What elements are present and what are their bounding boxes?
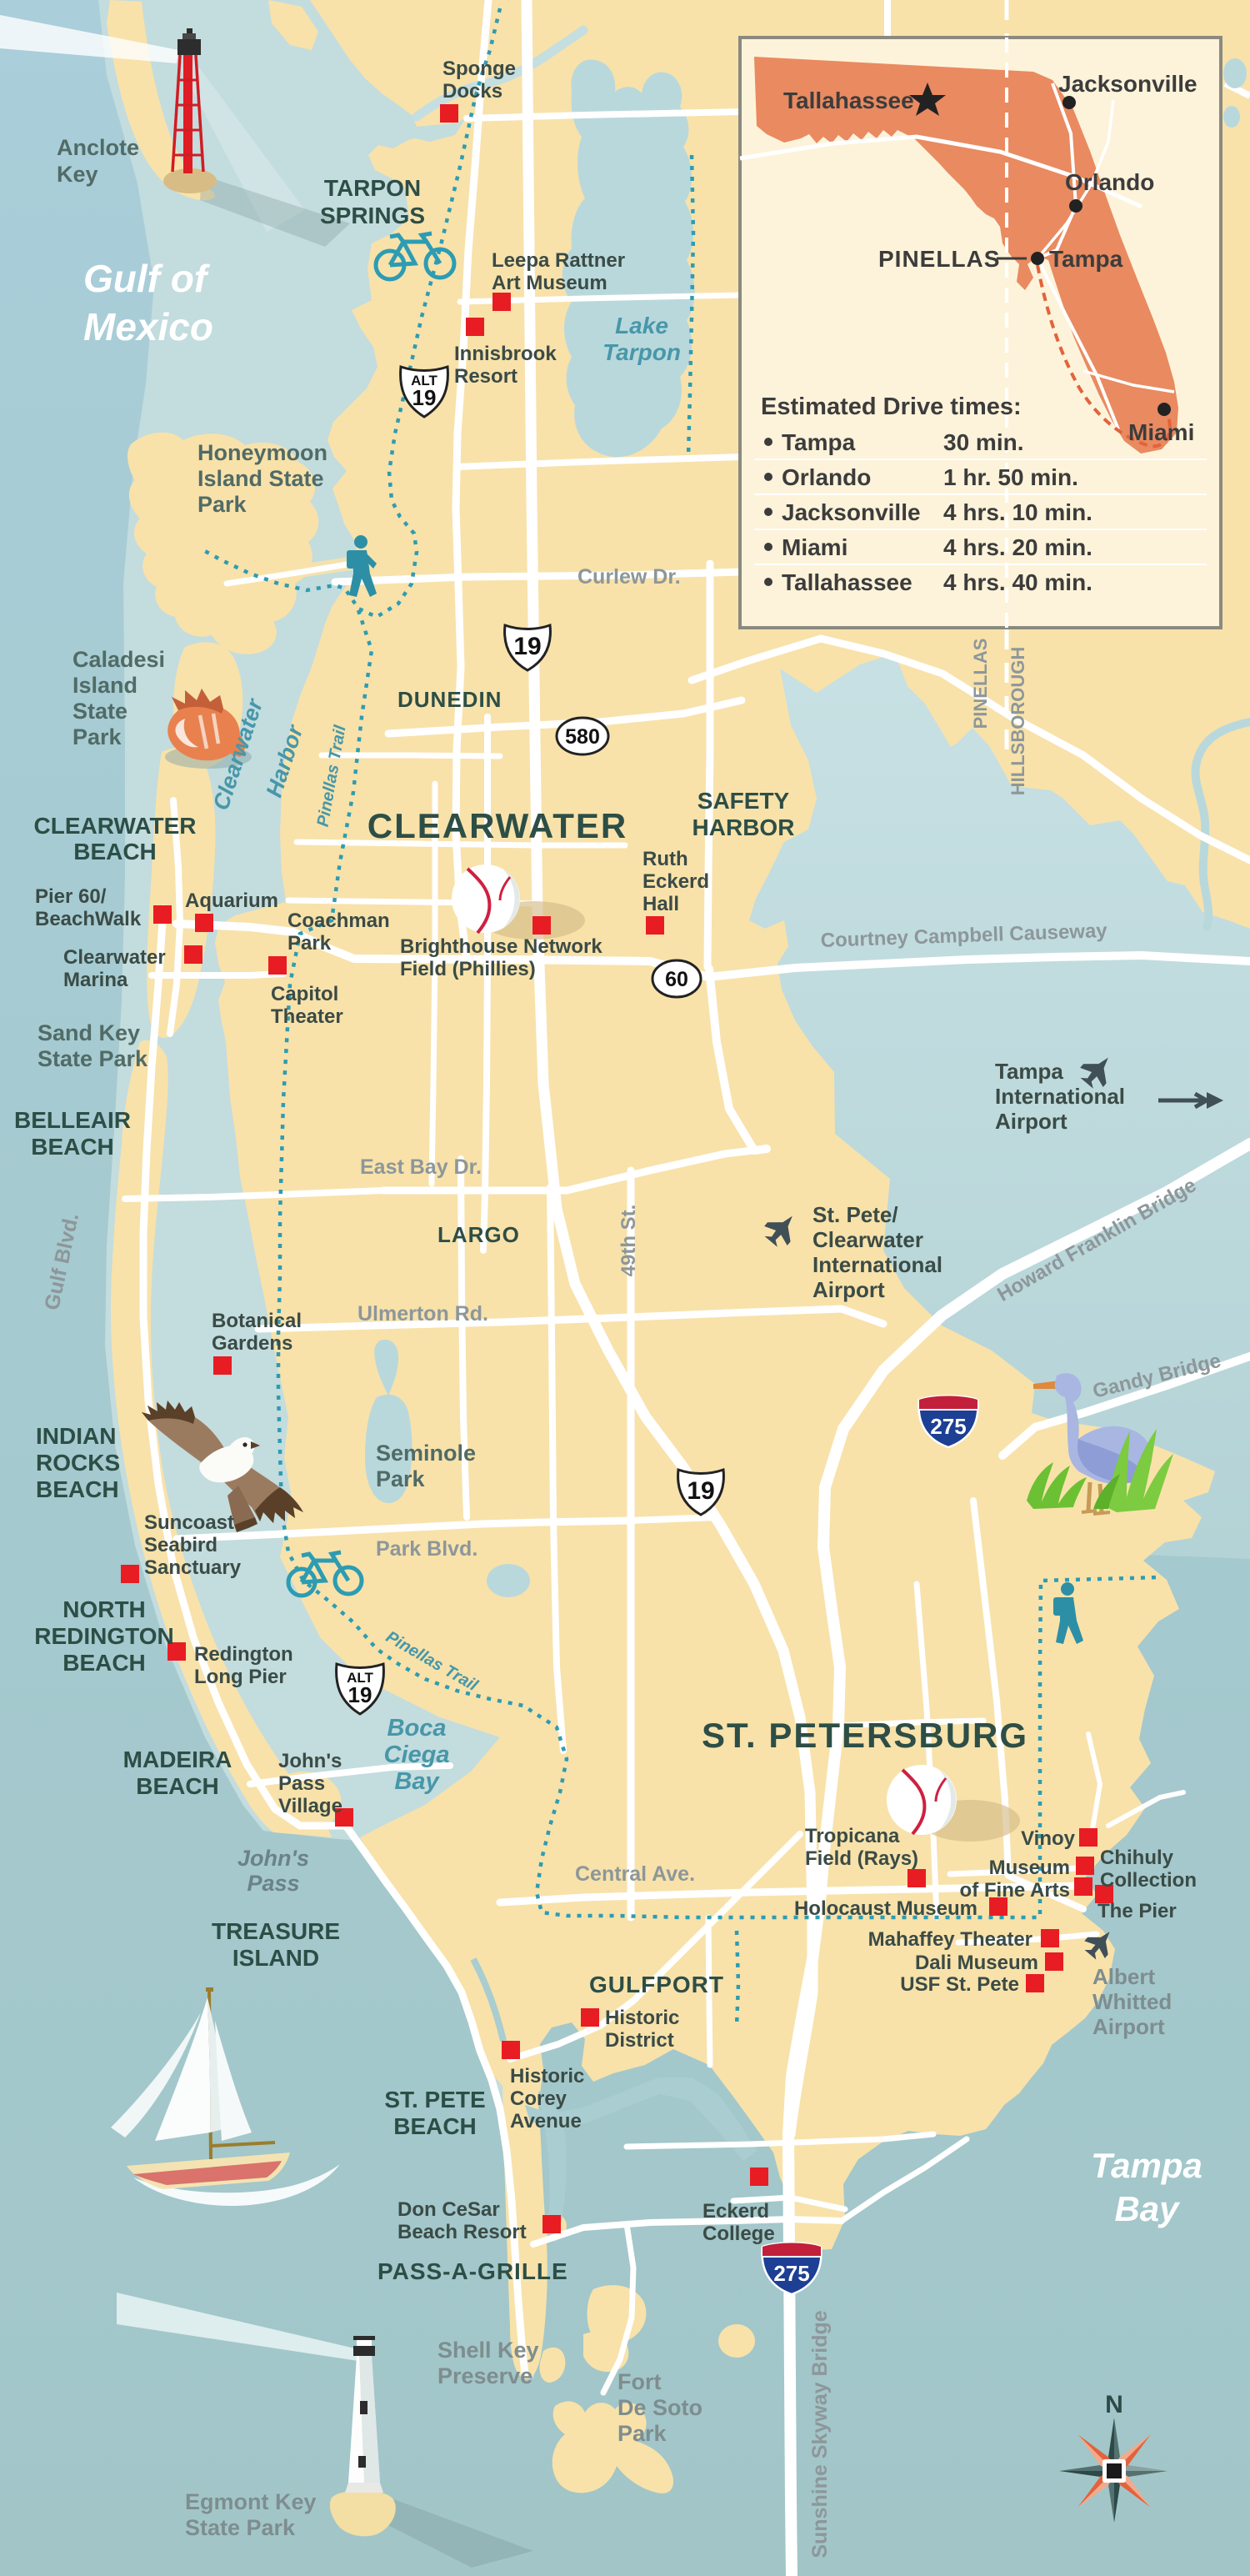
svg-text:College: College — [702, 2223, 775, 2245]
svg-text:BeachWalk: BeachWalk — [35, 908, 142, 930]
svg-text:Avenue: Avenue — [510, 2110, 582, 2132]
svg-text:De Soto: De Soto — [617, 2395, 702, 2420]
svg-text:Key: Key — [57, 162, 98, 187]
svg-text:580: 580 — [565, 725, 600, 749]
svg-text:Tampa: Tampa — [995, 1059, 1063, 1084]
svg-text:Ulmerton Rd.: Ulmerton Rd. — [357, 1302, 488, 1326]
svg-text:ST. PETE: ST. PETE — [384, 2087, 485, 2112]
svg-text:Boca: Boca — [387, 1715, 447, 1742]
svg-text:Eckerd: Eckerd — [642, 870, 709, 893]
svg-text:Lake: Lake — [615, 313, 668, 338]
svg-text:Albert: Albert — [1092, 1964, 1155, 1989]
svg-text:BEACH: BEACH — [36, 1476, 119, 1502]
svg-text:Mexico: Mexico — [83, 305, 213, 348]
svg-text:Vinoy: Vinoy — [1021, 1827, 1076, 1850]
svg-text:1 hr. 50 min.: 1 hr. 50 min. — [943, 464, 1078, 490]
svg-text:Marina: Marina — [63, 969, 128, 991]
svg-text:John's: John's — [278, 1750, 342, 1772]
svg-text:NORTH: NORTH — [62, 1596, 146, 1622]
svg-text:Redington: Redington — [194, 1643, 293, 1666]
svg-text:Tallahassee: Tallahassee — [782, 569, 912, 595]
svg-text:Clearwater: Clearwater — [63, 946, 166, 969]
svg-text:Pass: Pass — [278, 1772, 325, 1795]
svg-text:275: 275 — [773, 2261, 809, 2286]
svg-text:SAFETY: SAFETY — [697, 788, 790, 814]
svg-text:District: District — [605, 2029, 674, 2052]
svg-text:Corey: Corey — [510, 2087, 567, 2110]
svg-text:PINELLAS: PINELLAS — [970, 639, 991, 729]
svg-text:Art Museum: Art Museum — [492, 272, 607, 294]
svg-text:Bay: Bay — [1114, 2189, 1181, 2228]
svg-text:Park: Park — [197, 492, 247, 517]
svg-text:60: 60 — [665, 968, 688, 991]
svg-text:Sand Key: Sand Key — [37, 1020, 140, 1045]
svg-text:St. Pete/: St. Pete/ — [812, 1202, 898, 1227]
svg-text:DUNEDIN: DUNEDIN — [397, 687, 502, 712]
svg-text:Park: Park — [287, 932, 332, 955]
svg-text:Whitted: Whitted — [1092, 1989, 1172, 2014]
svg-text:TARPON: TARPON — [324, 175, 421, 201]
svg-text:Historic: Historic — [605, 2007, 679, 2029]
svg-text:Theater: Theater — [271, 1005, 343, 1028]
svg-text:BEACH: BEACH — [62, 1650, 146, 1676]
svg-text:Estimated Drive times:: Estimated Drive times: — [761, 393, 1022, 420]
svg-text:Park: Park — [617, 2421, 667, 2446]
svg-text:Tarpon: Tarpon — [602, 339, 681, 365]
svg-text:Curlew Dr.: Curlew Dr. — [577, 565, 681, 589]
svg-text:Mahaffey Theater: Mahaffey Theater — [868, 1928, 1032, 1951]
svg-text:Caladesi: Caladesi — [72, 647, 165, 672]
svg-text:Island: Island — [72, 673, 137, 698]
svg-text:State: State — [72, 699, 127, 724]
svg-text:Tampa: Tampa — [1091, 2146, 1202, 2185]
svg-text:BEACH: BEACH — [393, 2113, 477, 2139]
svg-text:Brighthouse Network: Brighthouse Network — [400, 935, 602, 958]
svg-text:Shell Key: Shell Key — [437, 2338, 539, 2363]
svg-text:Museum: Museum — [989, 1857, 1070, 1879]
svg-text:30 min.: 30 min. — [943, 429, 1023, 455]
svg-text:TREASURE: TREASURE — [212, 1918, 340, 1944]
svg-text:Capitol: Capitol — [271, 983, 338, 1005]
svg-text:MADEIRA: MADEIRA — [123, 1747, 232, 1772]
svg-text:Eckerd: Eckerd — [702, 2200, 769, 2223]
svg-text:Dali Museum: Dali Museum — [915, 1952, 1038, 1974]
svg-text:USF St. Pete: USF St. Pete — [900, 1973, 1019, 1996]
svg-text:Egmont Key: Egmont Key — [185, 2489, 317, 2514]
svg-text:4 hrs. 10 min.: 4 hrs. 10 min. — [943, 499, 1092, 525]
svg-text:19: 19 — [348, 1682, 372, 1707]
svg-text:Sponge: Sponge — [442, 58, 516, 80]
svg-text:Pass: Pass — [247, 1871, 299, 1896]
svg-text:Sunshine Skyway Bridge: Sunshine Skyway Bridge — [808, 2310, 832, 2558]
svg-text:Honeymoon: Honeymoon — [197, 440, 327, 465]
svg-text:Miami: Miami — [1128, 419, 1194, 445]
svg-text:Leepa Rattner: Leepa Rattner — [492, 249, 625, 272]
svg-text:Ruth: Ruth — [642, 848, 688, 870]
svg-text:Holocaust Museum: Holocaust Museum — [794, 1897, 977, 1920]
svg-text:19: 19 — [687, 1477, 714, 1505]
svg-text:Field (Phillies): Field (Phillies) — [400, 958, 536, 980]
svg-text:19: 19 — [513, 633, 541, 660]
svg-text:4 hrs. 40 min.: 4 hrs. 40 min. — [943, 569, 1092, 595]
svg-text:Jacksonville: Jacksonville — [1058, 71, 1197, 97]
svg-text:HARBOR: HARBOR — [692, 814, 795, 840]
svg-text:49th St.: 49th St. — [617, 1205, 640, 1277]
svg-text:Park: Park — [376, 1466, 426, 1491]
svg-text:Bay: Bay — [394, 1768, 440, 1795]
svg-text:Seminole: Seminole — [376, 1441, 476, 1466]
svg-text:Seabird: Seabird — [144, 1534, 217, 1556]
svg-text:Don CeSar: Don CeSar — [397, 2198, 500, 2221]
svg-text:Fort: Fort — [617, 2369, 661, 2394]
svg-text:Gulf of: Gulf of — [83, 257, 211, 300]
svg-text:Gardens: Gardens — [212, 1332, 292, 1355]
svg-text:4 hrs. 20 min.: 4 hrs. 20 min. — [943, 534, 1092, 560]
svg-text:N: N — [1105, 2391, 1123, 2418]
svg-text:CLEARWATER: CLEARWATER — [367, 806, 627, 845]
svg-text:Innisbrook: Innisbrook — [454, 343, 557, 365]
svg-text:BEACH: BEACH — [136, 1773, 219, 1799]
svg-text:Central Ave.: Central Ave. — [575, 1862, 695, 1886]
svg-text:Orlando: Orlando — [1065, 169, 1154, 195]
svg-text:Collection: Collection — [1100, 1869, 1197, 1892]
svg-text:Airport: Airport — [1092, 2014, 1165, 2039]
svg-text:Airport: Airport — [995, 1109, 1067, 1134]
svg-text:Airport: Airport — [812, 1277, 885, 1302]
svg-text:Tallahassee: Tallahassee — [783, 88, 914, 113]
svg-text:Field (Rays): Field (Rays) — [805, 1847, 918, 1870]
svg-text:Jacksonville: Jacksonville — [782, 499, 921, 525]
svg-text:Park Blvd.: Park Blvd. — [376, 1537, 477, 1561]
svg-text:Resort: Resort — [454, 365, 517, 388]
svg-text:Anclote: Anclote — [57, 135, 139, 160]
svg-text:International: International — [812, 1252, 942, 1277]
svg-text:International: International — [995, 1084, 1125, 1109]
svg-text:Suncoast: Suncoast — [144, 1511, 234, 1534]
svg-text:Orlando: Orlando — [782, 464, 871, 490]
svg-text:SPRINGS: SPRINGS — [320, 203, 425, 228]
svg-text:Tampa: Tampa — [1049, 246, 1123, 272]
svg-text:Park: Park — [72, 724, 122, 749]
svg-text:East Bay Dr.: East Bay Dr. — [360, 1155, 482, 1179]
svg-text:Botanical: Botanical — [212, 1310, 302, 1332]
svg-text:Village: Village — [278, 1795, 342, 1817]
svg-text:HILLSBOROUGH: HILLSBOROUGH — [1007, 647, 1028, 795]
svg-text:INDIAN: INDIAN — [36, 1423, 116, 1449]
svg-text:Tropicana: Tropicana — [805, 1825, 900, 1847]
svg-text:Hall: Hall — [642, 893, 679, 915]
svg-text:John's: John's — [237, 1846, 309, 1871]
svg-text:Clearwater: Clearwater — [812, 1227, 923, 1252]
svg-text:ISLAND: ISLAND — [232, 1945, 319, 1971]
svg-text:Long Pier: Long Pier — [194, 1666, 287, 1688]
svg-text:Tampa: Tampa — [782, 429, 856, 455]
svg-text:CLEARWATER: CLEARWATER — [34, 813, 197, 839]
svg-text:Beach Resort: Beach Resort — [397, 2221, 527, 2243]
svg-text:BEACH: BEACH — [31, 1134, 114, 1160]
svg-text:Docks: Docks — [442, 80, 502, 103]
svg-text:Coachman: Coachman — [287, 910, 390, 932]
svg-text:Sanctuary: Sanctuary — [144, 1556, 242, 1579]
svg-text:275: 275 — [930, 1414, 966, 1439]
svg-text:Historic: Historic — [510, 2065, 584, 2087]
svg-text:Chihuly: Chihuly — [1100, 1847, 1174, 1869]
svg-text:Pier 60/: Pier 60/ — [35, 885, 107, 908]
svg-text:GULFPORT: GULFPORT — [589, 1972, 724, 1997]
svg-text:Island State: Island State — [197, 466, 324, 491]
svg-text:REDINGTON: REDINGTON — [34, 1623, 174, 1649]
svg-text:PASS-A-GRILLE: PASS-A-GRILLE — [377, 2258, 568, 2284]
svg-text:BEACH: BEACH — [73, 839, 157, 865]
svg-text:The Pier: The Pier — [1097, 1900, 1177, 1922]
svg-text:State Park: State Park — [185, 2515, 296, 2540]
svg-text:ROCKS: ROCKS — [36, 1450, 120, 1476]
svg-text:PINELLAS: PINELLAS — [878, 246, 1000, 272]
svg-text:19: 19 — [412, 385, 437, 410]
svg-text:BELLEAIR: BELLEAIR — [14, 1107, 131, 1133]
svg-text:State Park: State Park — [37, 1046, 148, 1071]
svg-text:ST. PETERSBURG: ST. PETERSBURG — [702, 1716, 1028, 1755]
svg-text:Miami: Miami — [782, 534, 847, 560]
svg-text:Aquarium: Aquarium — [185, 890, 278, 912]
svg-text:Ciega: Ciega — [384, 1742, 450, 1768]
svg-text:LARGO: LARGO — [437, 1222, 520, 1247]
svg-text:Preserve: Preserve — [437, 2363, 532, 2388]
